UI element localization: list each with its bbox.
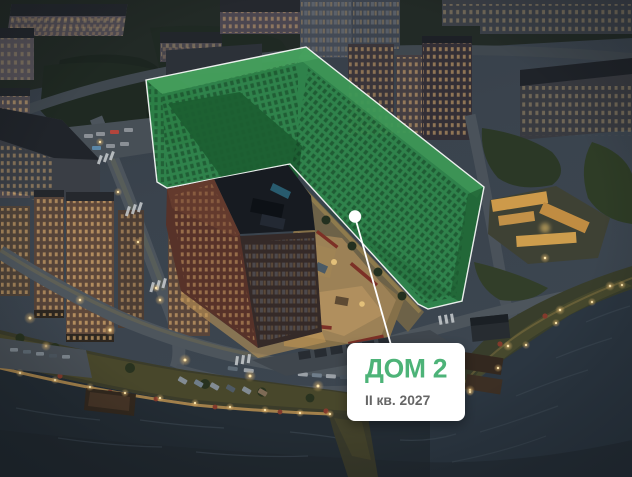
svg-text:ДОМ 2: ДОМ 2 [365,354,447,384]
svg-text:II кв. 2027: II кв. 2027 [365,393,431,408]
